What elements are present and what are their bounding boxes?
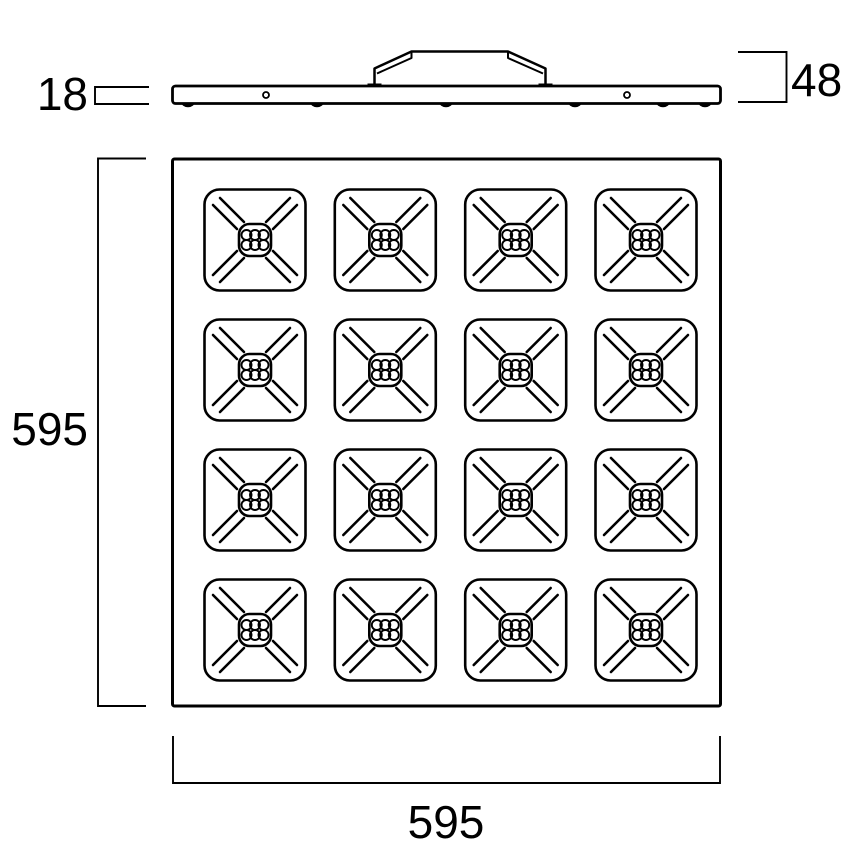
dim-label-thickness: 18 [37,68,88,120]
led-cell [596,190,697,291]
led-cell [205,450,306,551]
led-cell [596,450,697,551]
dim-bracket-total-height [738,52,787,102]
led-cell [205,190,306,291]
dim-label-panel-height: 595 [11,403,88,455]
driver-box [368,52,553,88]
mounting-clip [699,103,712,108]
front-view: 595 595 [11,159,720,849]
led-cell [205,580,306,681]
led-cell [335,450,436,551]
dim-bracket-panel-height [98,159,146,707]
panel-profile [173,86,721,104]
led-cell [465,320,566,421]
drawing-svg: 18 48 [0,0,850,850]
mounting-clip [657,103,670,108]
led-cell [465,190,566,291]
face-hole [263,92,269,98]
dim-label-total-height: 48 [791,54,842,106]
led-cell [465,580,566,681]
led-cell [335,320,436,421]
side-view: 18 48 [37,52,842,121]
technical-drawing: 18 48 [0,0,850,850]
mounting-clip [440,103,453,108]
led-cell [335,190,436,291]
dim-bracket-thickness [95,87,149,104]
mounting-clip [182,103,195,108]
led-cell [335,580,436,681]
mounting-clip [311,103,324,108]
led-cell [465,450,566,551]
face-hole [624,92,630,98]
led-cell [205,320,306,421]
mounting-clip [569,103,582,108]
led-cell [596,320,697,421]
led-cell [596,580,697,681]
dim-label-panel-width: 595 [408,796,485,848]
dim-bracket-panel-width [173,736,720,783]
